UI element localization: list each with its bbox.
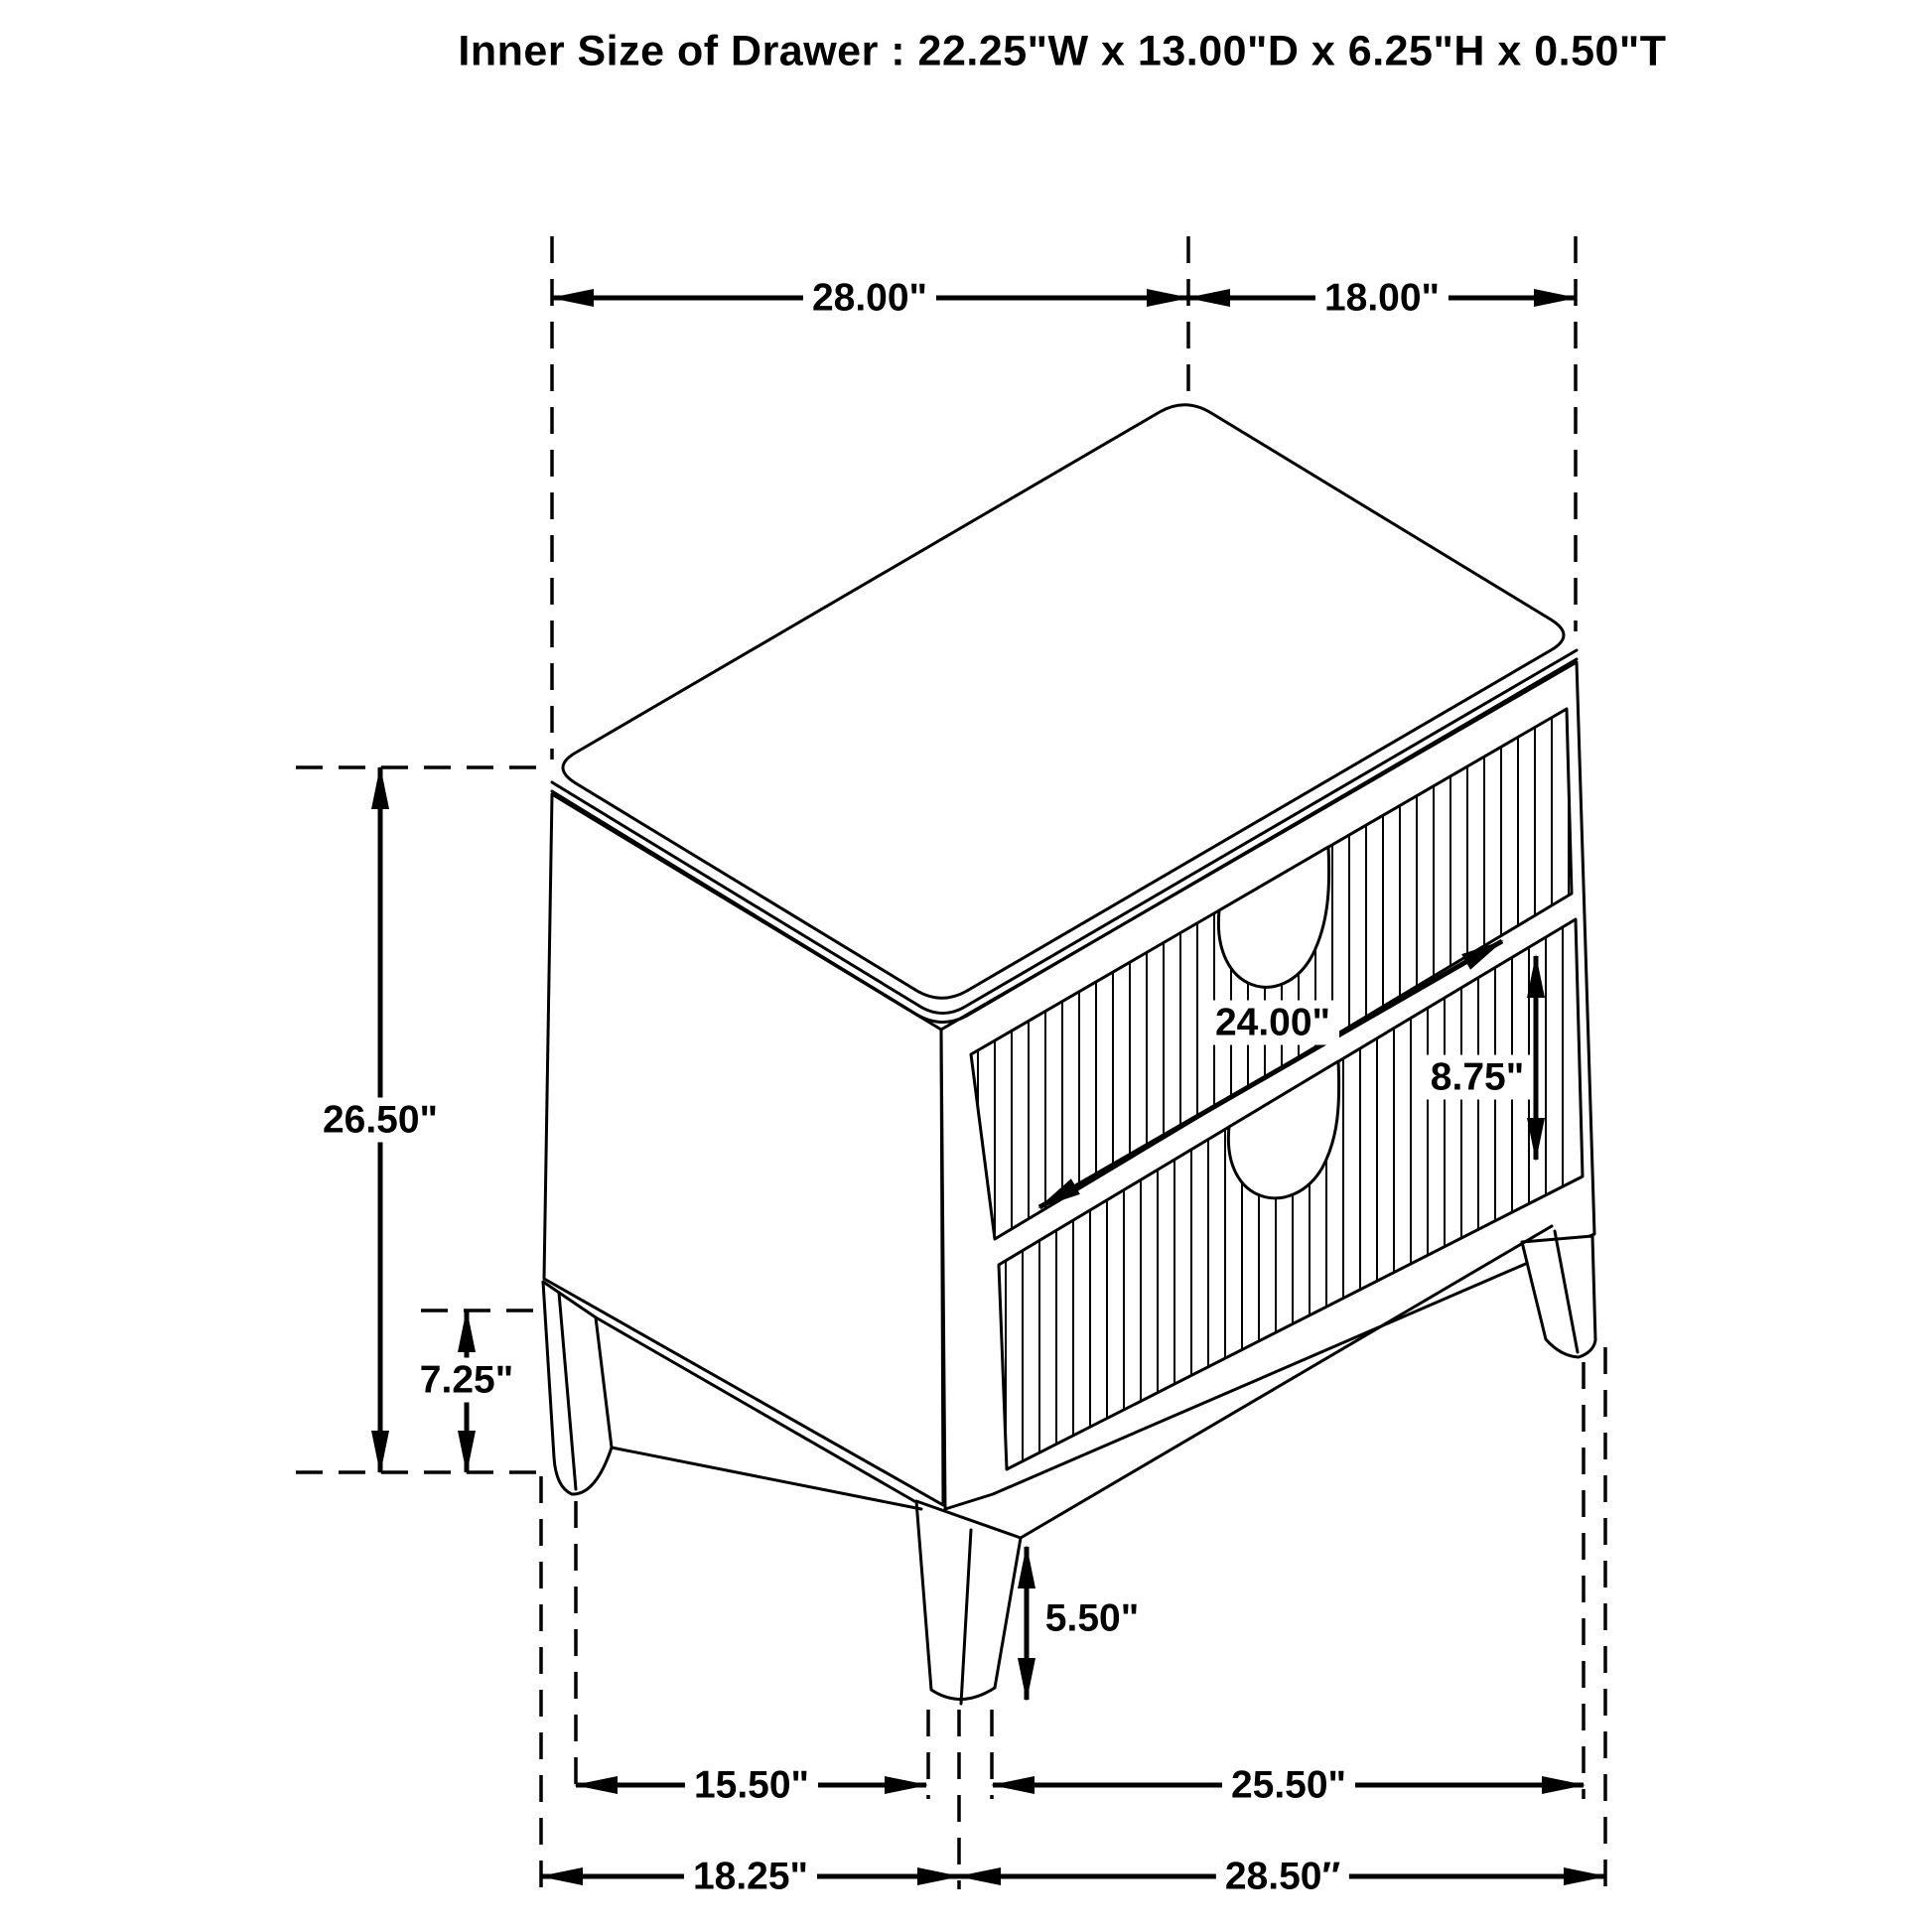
dim-label-side-span: 25.50" [1222, 1763, 1355, 1808]
dim-label-drawer-width: 24.00" [1206, 1001, 1339, 1045]
dim-label-top-depth: 18.00" [1315, 276, 1449, 321]
dim-label-top-width: 28.00" [803, 276, 936, 321]
dim-label-front-span: 15.50" [685, 1763, 818, 1808]
back-left-leg [543, 1282, 612, 1494]
dim-label-front-leg-height: 5.50" [1036, 1596, 1148, 1641]
dim-label-base-depth: 28.50″ [1216, 1855, 1349, 1899]
dim-label-overall-height: 26.50" [314, 1098, 447, 1143]
dimension-diagram: Inner Size of Drawer : 22.25"W x 13.00"D… [0, 0, 1932, 1932]
nightstand-line-drawing [0, 0, 1932, 1932]
diagram-title: Inner Size of Drawer : 22.25"W x 13.00"D… [458, 28, 1666, 76]
dim-label-drawer-height: 8.75" [1422, 1055, 1533, 1100]
front-leg [916, 1501, 1021, 1700]
dim-label-base-width: 18.25" [684, 1855, 817, 1899]
dim-label-back-leg-height: 7.25" [411, 1358, 522, 1403]
